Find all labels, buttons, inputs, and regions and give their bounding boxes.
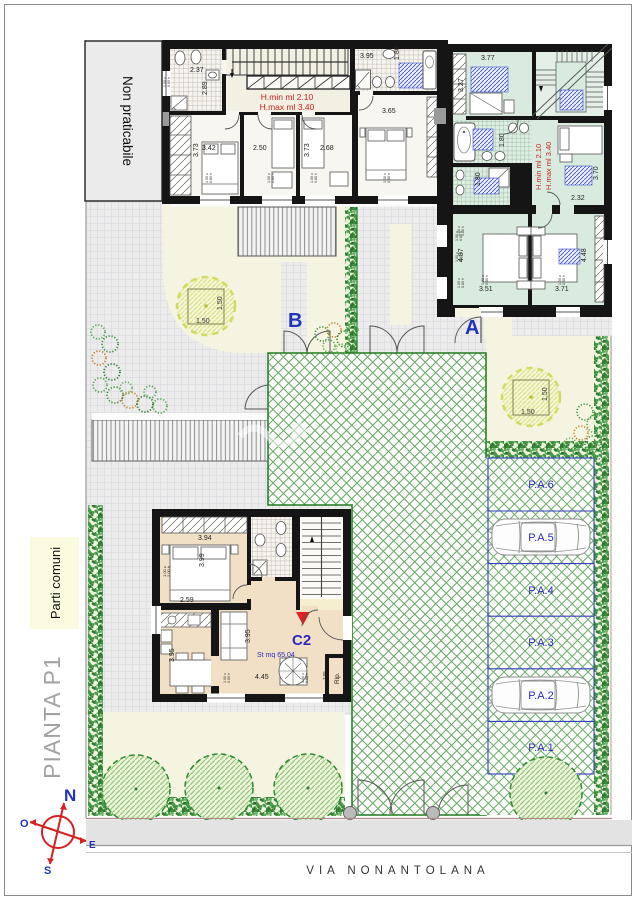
svg-text:1.80: 1.80: [499, 133, 506, 147]
svg-text:1.80: 1.80: [475, 172, 482, 186]
svg-text:3.05: 3.05: [322, 671, 327, 680]
svg-text:PIANTA P1: PIANTA P1: [39, 655, 65, 779]
svg-text:2.89: 2.89: [202, 81, 209, 95]
svg-text:3.95: 3.95: [245, 629, 252, 643]
svg-text:H.min ml 2.10: H.min ml 2.10: [261, 92, 314, 102]
svg-text:4.48: 4.48: [581, 248, 588, 262]
svg-text:3.94: 3.94: [198, 535, 212, 542]
svg-text:Non praticabile: Non praticabile: [120, 76, 135, 166]
svg-text:P.A.3: P.A.3: [528, 637, 554, 649]
svg-text:B: B: [288, 310, 302, 332]
svg-text:3.27: 3.27: [458, 78, 465, 92]
svg-text:O: O: [20, 818, 29, 830]
svg-text:N: N: [64, 786, 76, 805]
svg-text:VIA NONANTOLANA: VIA NONANTOLANA: [306, 865, 489, 877]
svg-text:Parti comuni: Parti comuni: [48, 547, 63, 619]
svg-text:0.80 h: 0.80 h: [209, 173, 213, 183]
svg-text:3.71: 3.71: [555, 286, 569, 293]
svg-text:3.73: 3.73: [304, 143, 311, 157]
svg-text:2.32: 2.32: [571, 195, 585, 202]
svg-text:P.A.5: P.A.5: [528, 532, 554, 544]
svg-text:2.68: 2.68: [320, 145, 334, 152]
svg-text:2.59: 2.59: [180, 597, 194, 604]
svg-text:2.37: 2.37: [190, 67, 204, 74]
svg-text:3.77: 3.77: [481, 55, 495, 62]
svg-text:1,50: 1,50: [196, 318, 210, 325]
svg-text:3.65: 3.65: [382, 108, 396, 115]
svg-text:1,50: 1,50: [521, 409, 535, 416]
svg-text:C2: C2: [292, 632, 311, 649]
svg-text:P.A.4: P.A.4: [528, 585, 554, 597]
svg-text:3.70: 3.70: [593, 166, 600, 180]
svg-text:1,50: 1,50: [217, 296, 224, 310]
svg-text:2.50: 2.50: [253, 145, 267, 152]
svg-text:S: S: [44, 865, 51, 877]
svg-text:P.A.6: P.A.6: [528, 479, 554, 491]
svg-text:St mq 65,04: St mq 65,04: [257, 652, 295, 659]
svg-text:2.00 h: 2.00 h: [166, 566, 171, 577]
svg-text:1.80: 1.80: [394, 46, 401, 60]
svg-text:Rip.: Rip.: [334, 672, 341, 684]
svg-text:H.min ml 2.10: H.min ml 2.10: [534, 144, 543, 190]
svg-text:3.42: 3.42: [202, 145, 216, 152]
svg-text:A: A: [465, 317, 479, 339]
svg-text:1,50: 1,50: [542, 387, 549, 401]
svg-text:3.51: 3.51: [479, 286, 493, 293]
svg-text:3.95: 3.95: [169, 648, 176, 662]
svg-text:E: E: [89, 840, 96, 851]
svg-text:P.A.1: P.A.1: [528, 742, 554, 754]
svg-text:P.A.2: P.A.2: [528, 690, 554, 702]
svg-text:3.73: 3.73: [193, 143, 200, 157]
svg-text:4.45: 4.45: [255, 674, 269, 681]
svg-text:3.99: 3.99: [199, 553, 206, 567]
svg-text:H.max ml 3.40: H.max ml 3.40: [544, 142, 553, 190]
svg-text:H.max ml 3.40: H.max ml 3.40: [260, 102, 315, 112]
svg-text:3.95: 3.95: [360, 53, 374, 60]
